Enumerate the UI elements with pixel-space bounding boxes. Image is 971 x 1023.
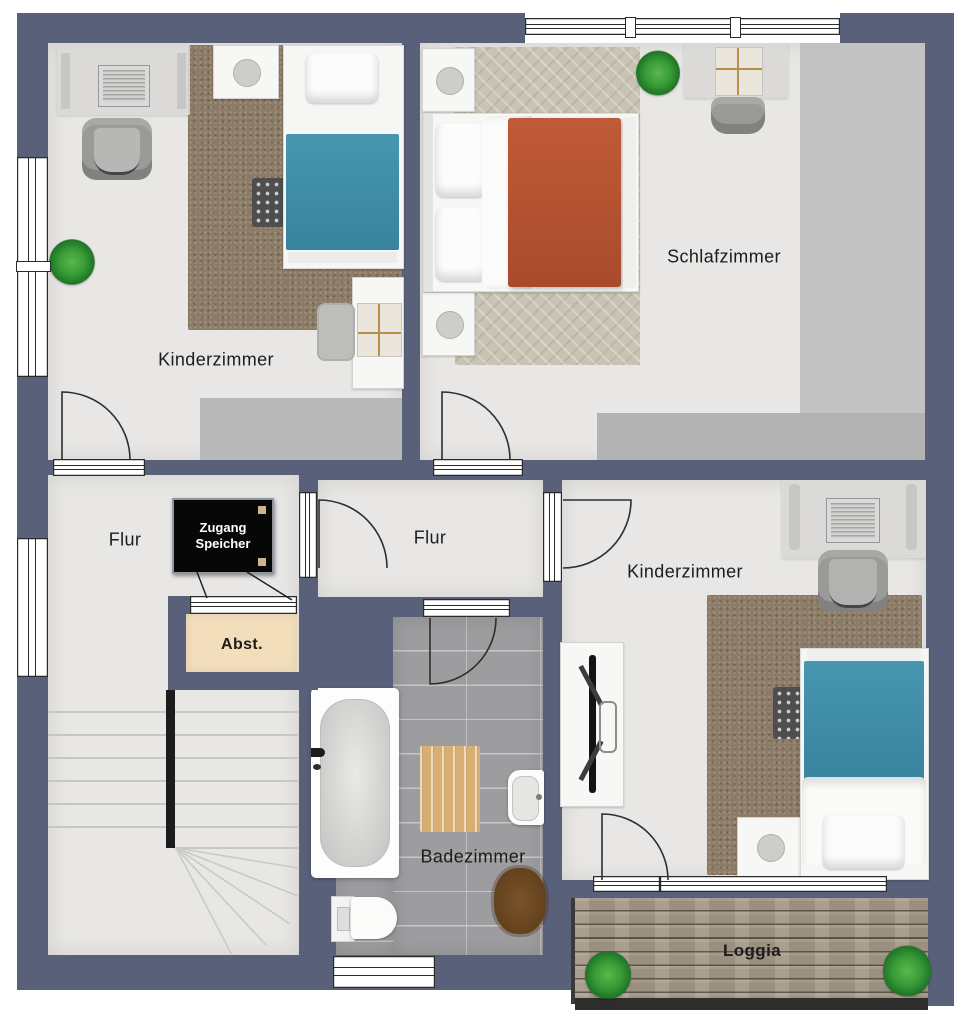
attic-access-sign: Zugang Speicher — [172, 498, 274, 574]
abst-wall-bottom — [168, 672, 318, 690]
door-sill-kinderzimmer-right — [543, 492, 562, 582]
door-sill-kinderzimmer-left — [53, 459, 145, 476]
lamp-icon — [436, 311, 464, 339]
attic-sign-line2: Speicher — [196, 536, 251, 552]
faucet-icon — [536, 794, 542, 800]
pillow — [436, 207, 486, 281]
closet-zone-schlafzimmer-bottom — [597, 413, 925, 460]
loggia-wall-right — [928, 898, 954, 1006]
chair-side — [317, 303, 355, 361]
closet-zone-schlafzimmer-right — [800, 43, 925, 415]
desk-schlafzimmer — [684, 43, 788, 98]
plant-icon — [883, 944, 931, 998]
headboard — [424, 114, 433, 291]
window-bay-top — [525, 3, 840, 43]
desk-kinderzimmer-right — [782, 480, 926, 558]
pillow — [823, 815, 904, 869]
tv-sideboard — [560, 642, 624, 807]
laptop-icon — [98, 65, 150, 107]
faucet-icon — [313, 764, 321, 770]
nightstand — [737, 817, 802, 877]
nightstand — [213, 45, 279, 99]
room-label-flur-middle: Flur — [414, 528, 447, 549]
bathtub-basin — [320, 699, 390, 867]
abst-wall-top — [168, 596, 192, 615]
plant-icon — [49, 239, 95, 285]
toilet — [331, 896, 397, 940]
pillow — [436, 123, 486, 197]
headboard — [807, 649, 921, 661]
chair-schlafzimmer — [711, 97, 765, 134]
faucet-icon — [311, 748, 325, 757]
closet-zone-kinderzimmer-left — [200, 398, 402, 460]
door-sill-badezimmer — [423, 599, 510, 617]
window-mullion — [730, 17, 741, 38]
window-kinderzimmer-right-bottom — [660, 876, 887, 892]
tv-icon — [589, 655, 596, 793]
tv-mount-detail — [599, 701, 617, 753]
plant-icon — [636, 50, 680, 96]
pillow — [306, 53, 378, 103]
chair-kinderzimmer-right — [818, 550, 888, 612]
room-label-flur-left: Flur — [109, 530, 142, 551]
floor-plan: Zugang Speicher — [0, 0, 971, 1023]
armchair-seat — [94, 128, 140, 175]
shelf-wood-detail — [357, 303, 402, 357]
sink — [508, 770, 544, 825]
desk-leg — [789, 484, 800, 550]
desk-kinderzimmer-left — [57, 45, 190, 115]
door-sill-loggia — [593, 876, 660, 892]
nightstand — [422, 292, 475, 356]
laptop-icon — [826, 498, 880, 543]
desk-leg — [177, 53, 186, 109]
window-badezimmer — [333, 956, 435, 988]
bathtub — [311, 688, 399, 878]
room-label-loggia: Loggia — [723, 941, 781, 961]
chair-seat — [829, 559, 877, 608]
sign-screw — [258, 558, 266, 566]
sink-basin — [512, 776, 539, 821]
door-sill-flur-left — [299, 492, 317, 578]
window-schlafzimmer-top — [525, 18, 840, 35]
footboard — [623, 117, 636, 288]
desk-leg — [906, 484, 917, 550]
attic-sign-line1: Zugang — [200, 520, 247, 536]
lamp-icon — [436, 67, 464, 95]
armchair-kinderzimmer-left — [82, 118, 152, 180]
door-sill-schlafzimmer — [433, 459, 523, 476]
bed-schlafzimmer — [423, 113, 639, 292]
bed-kinderzimmer-left — [283, 45, 404, 269]
blanket-blue — [286, 134, 399, 250]
attic-hatch — [190, 596, 297, 614]
bed-kinderzimmer-right — [800, 648, 929, 880]
room-label-schlafzimmer: Schlafzimmer — [667, 247, 781, 268]
room-label-kinderzimmer-right: Kinderzimmer — [627, 562, 743, 583]
toilet-bowl — [351, 897, 397, 939]
lamp-icon — [757, 834, 785, 862]
room-label-kinderzimmer-left: Kinderzimmer — [158, 350, 274, 371]
bath-rug — [494, 868, 546, 934]
bath-mat — [420, 746, 480, 832]
room-label-badezimmer: Badezimmer — [420, 847, 525, 868]
window-flur-left — [17, 538, 48, 677]
shelf-wood-detail — [715, 47, 763, 96]
blanket-blue — [804, 661, 924, 781]
plant-icon — [585, 950, 631, 1000]
window-mullion — [625, 17, 636, 38]
toilet-button — [337, 907, 350, 931]
blanket-red — [508, 118, 621, 287]
sign-screw — [258, 506, 266, 514]
room-label-abst: Abst. — [221, 636, 263, 654]
lamp-icon — [233, 59, 261, 87]
window-mullion — [16, 261, 51, 272]
desk-leg — [61, 53, 70, 109]
nightstand — [422, 48, 475, 112]
loggia-frame-bottom — [575, 998, 928, 1010]
footboard — [288, 252, 397, 263]
